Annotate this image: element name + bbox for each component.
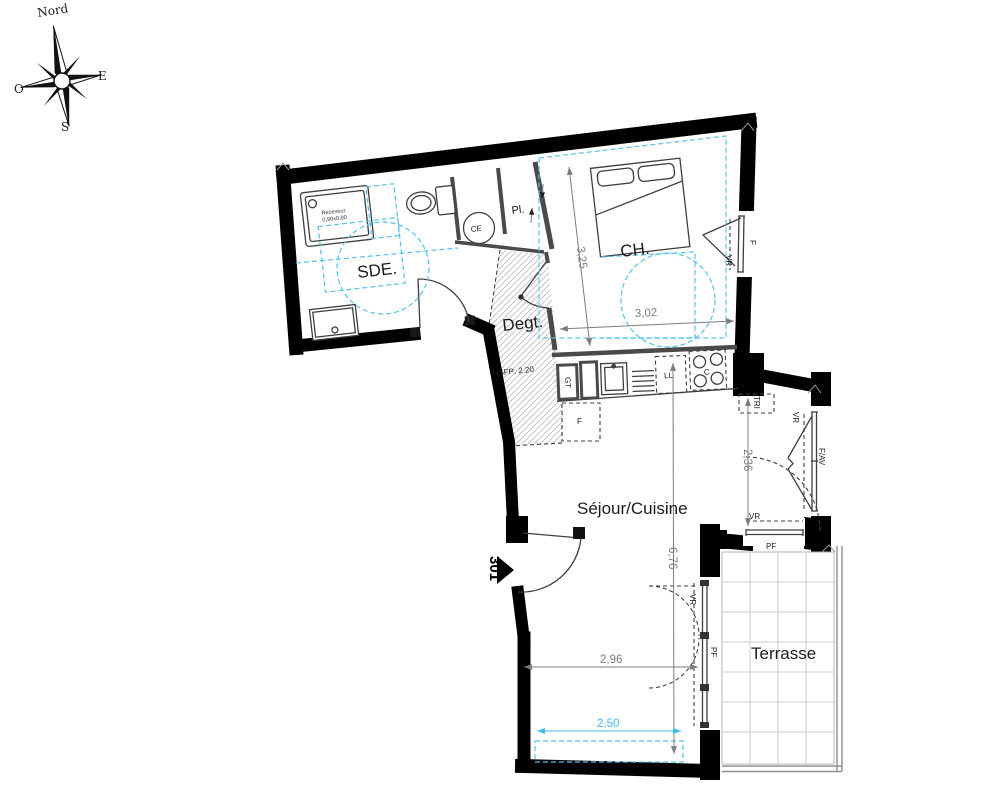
floor-plan-page: Nord E O S bbox=[0, 0, 991, 800]
wall-entry-jamb bbox=[506, 516, 528, 543]
dim-ch-depth: 3,25 bbox=[574, 246, 589, 270]
kitchen-counter: LL C GT bbox=[555, 349, 738, 401]
washing-machine-label: LL bbox=[664, 371, 674, 380]
fav-vr-label: VR bbox=[791, 412, 800, 423]
duct-label: GT bbox=[563, 377, 572, 389]
compass-west-label: O bbox=[14, 82, 24, 96]
toilet bbox=[405, 185, 455, 218]
cooktop-label: C bbox=[704, 368, 710, 377]
room-label-sde: SDE. bbox=[356, 259, 398, 282]
terrace-door-top-vr-label: VR bbox=[749, 512, 760, 521]
unit-number: 301 bbox=[486, 556, 503, 581]
fridge: F bbox=[562, 403, 600, 441]
dim-sejour-length: 6,76 bbox=[666, 547, 678, 569]
bedroom-window-label: F bbox=[748, 240, 757, 245]
compass-east-label: E bbox=[98, 69, 107, 83]
entrance-door: 301 bbox=[486, 527, 585, 592]
dim-ch-width: 3,02 bbox=[635, 307, 658, 320]
dim-sejour-width: 2,96 bbox=[600, 654, 622, 666]
fav-label: F/AV bbox=[817, 448, 826, 466]
room-label-sejour: Séjour/Cuisine bbox=[577, 499, 688, 518]
cooktop: C bbox=[689, 350, 726, 390]
bedroom-window-vr-label: VR bbox=[724, 255, 733, 266]
water-heater-label: CE bbox=[470, 224, 482, 234]
washbasin-cabinet bbox=[309, 304, 358, 340]
fridge-label: F bbox=[577, 417, 582, 426]
interior-partitions bbox=[410, 162, 737, 355]
terrace-door-side-vr-label: VR bbox=[688, 594, 697, 605]
dim-terrace-front: 2,50 bbox=[597, 718, 619, 730]
terrace-railing-bottom bbox=[722, 766, 842, 772]
room-label-terrasse: Terrasse bbox=[751, 644, 816, 663]
closet-pl-label: Pl. bbox=[511, 204, 525, 217]
floor-plan-drawing: Nord E O S bbox=[0, 0, 991, 800]
terrace-door-side-label: PF bbox=[709, 647, 718, 657]
terrace-railing-right bbox=[837, 546, 842, 771]
cabinet bbox=[580, 362, 597, 399]
compass-north-label: Nord bbox=[36, 1, 69, 20]
tri-label: TRI bbox=[752, 396, 761, 409]
terrace-door-side: VR PF bbox=[649, 577, 723, 730]
tri-cupboard: TRI bbox=[739, 394, 774, 413]
compass-south-label: S bbox=[61, 120, 69, 134]
terrace-door-top-label: PF bbox=[766, 542, 776, 551]
water-heater: CE bbox=[464, 213, 495, 244]
compass-rose: Nord E O S bbox=[12, 1, 109, 134]
french-window-fav: VR F/AV bbox=[788, 406, 832, 516]
bedroom-window: VR F bbox=[703, 211, 757, 277]
room-label-ch: CH. bbox=[619, 239, 650, 261]
dim-kitchen-bay: 2,36 bbox=[741, 449, 753, 471]
shower-tray: Receveur 0,90x0,90 bbox=[300, 185, 374, 246]
